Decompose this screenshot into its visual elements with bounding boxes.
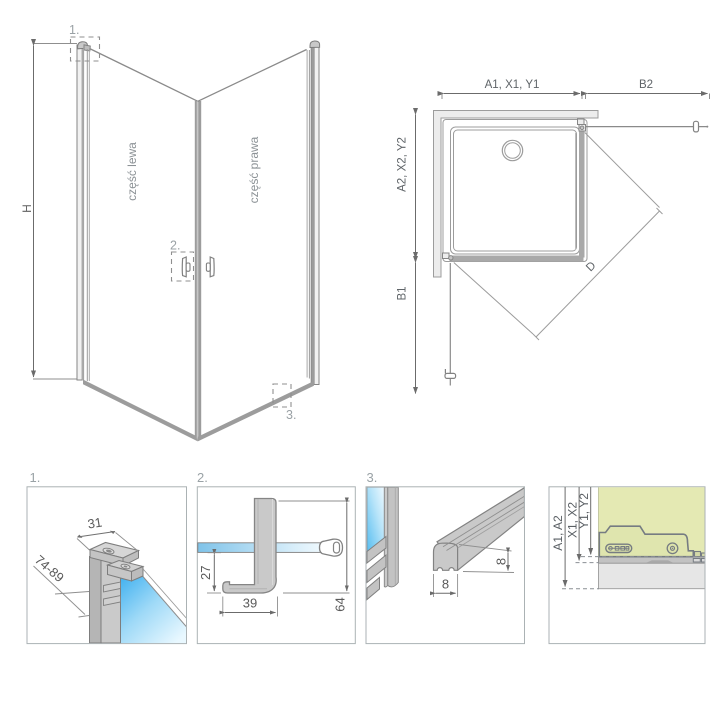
svg-text:39: 39 bbox=[243, 596, 257, 611]
svg-text:3.: 3. bbox=[367, 470, 378, 485]
svg-text:część lewa: część lewa bbox=[125, 142, 139, 201]
svg-text:27: 27 bbox=[198, 566, 213, 580]
svg-text:H: H bbox=[20, 204, 34, 213]
svg-text:1.: 1. bbox=[30, 470, 41, 485]
svg-text:A1, X1, Y1: A1, X1, Y1 bbox=[485, 79, 540, 91]
svg-text:1.: 1. bbox=[69, 23, 79, 37]
svg-text:B1: B1 bbox=[397, 286, 409, 300]
svg-text:A1, A2: A1, A2 bbox=[551, 515, 565, 551]
svg-text:31: 31 bbox=[86, 515, 103, 532]
svg-text:D: D bbox=[584, 260, 598, 274]
svg-text:8: 8 bbox=[442, 576, 449, 591]
svg-text:8: 8 bbox=[494, 558, 509, 565]
svg-text:Y1, Y2: Y1, Y2 bbox=[577, 493, 591, 529]
svg-text:2.: 2. bbox=[197, 470, 208, 485]
svg-text:3.: 3. bbox=[286, 408, 296, 422]
svg-text:B2: B2 bbox=[639, 79, 653, 91]
svg-text:część prawa: część prawa bbox=[247, 136, 261, 203]
svg-text:A2, X2, Y2: A2, X2, Y2 bbox=[397, 137, 409, 192]
svg-text:2.: 2. bbox=[170, 239, 180, 253]
svg-text:64: 64 bbox=[333, 597, 348, 611]
